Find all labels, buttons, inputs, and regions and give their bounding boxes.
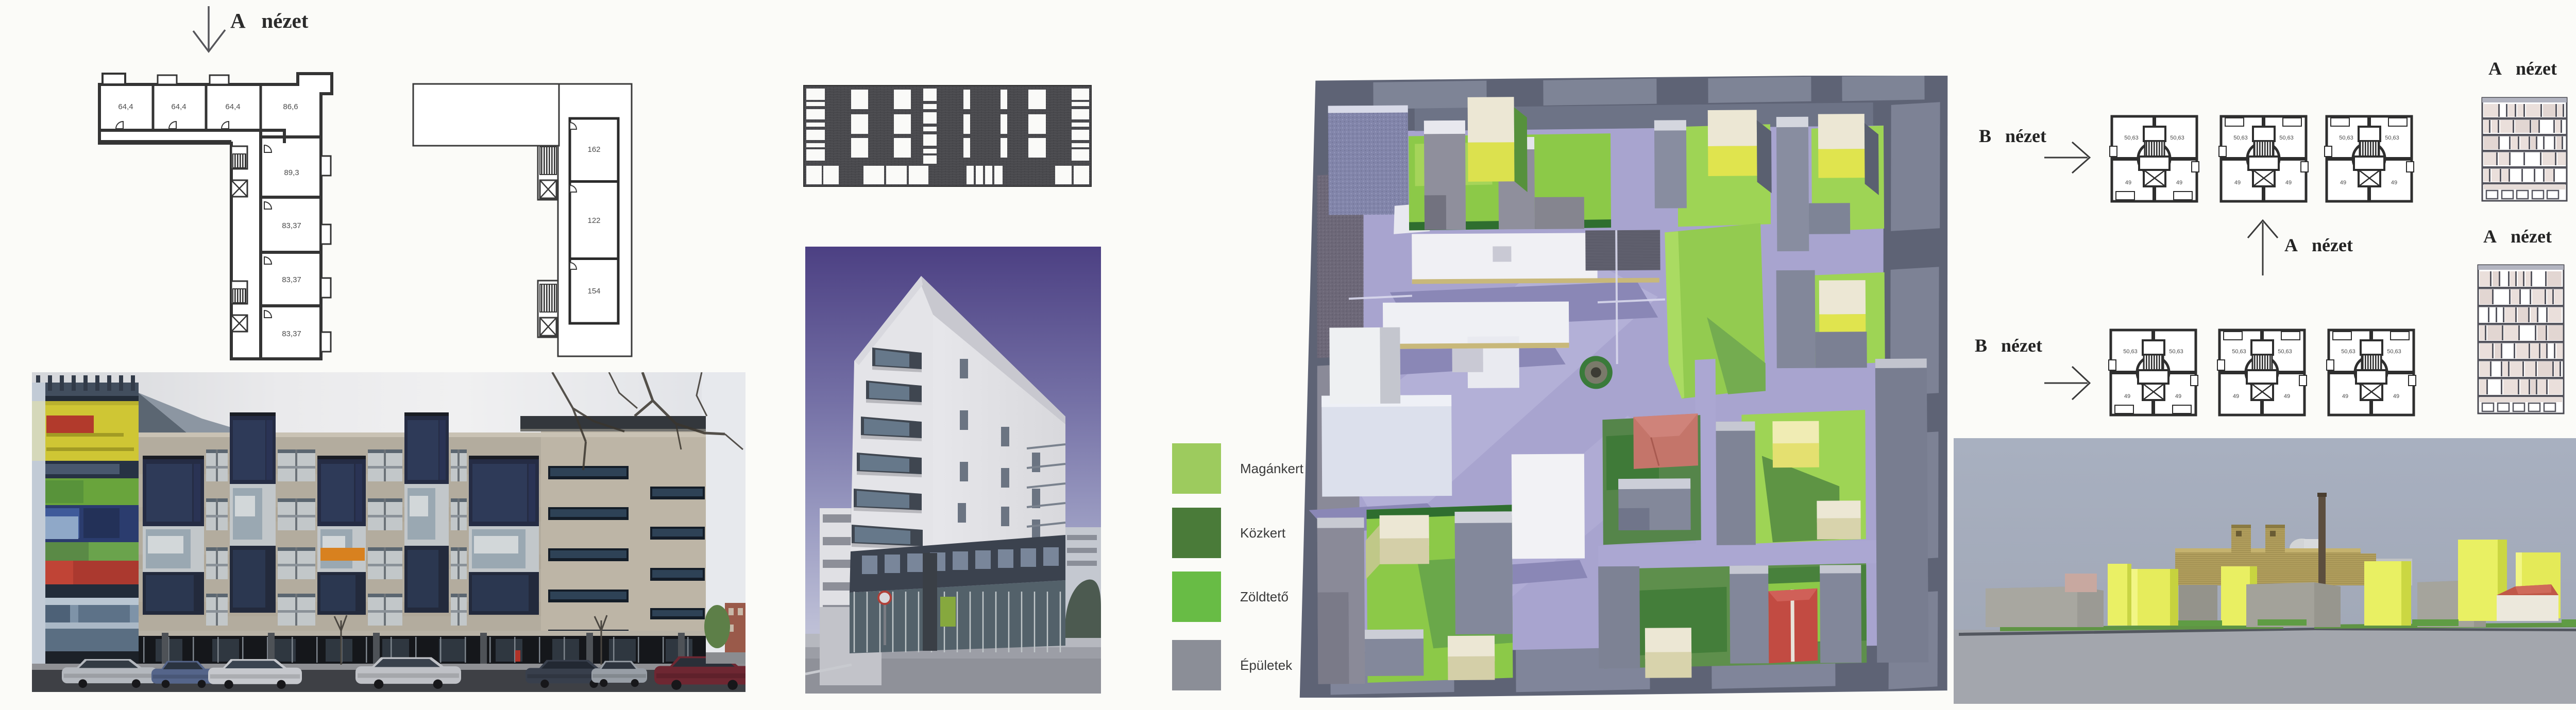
svg-text:49: 49 bbox=[2342, 393, 2348, 400]
svg-text:50,63: 50,63 bbox=[2278, 349, 2292, 355]
svg-text:49: 49 bbox=[2175, 393, 2181, 400]
svg-text:49: 49 bbox=[2125, 180, 2131, 186]
svg-text:83,37: 83,37 bbox=[282, 275, 301, 284]
svg-text:50,63: 50,63 bbox=[2385, 135, 2399, 141]
svg-text:64,4: 64,4 bbox=[118, 102, 133, 111]
svg-text:50,63: 50,63 bbox=[2169, 349, 2183, 355]
svg-text:83,37: 83,37 bbox=[282, 330, 301, 338]
svg-text:50,63: 50,63 bbox=[2279, 135, 2294, 141]
svg-text:64,4: 64,4 bbox=[225, 102, 240, 111]
svg-text:154: 154 bbox=[587, 287, 600, 296]
svg-text:50,63: 50,63 bbox=[2123, 349, 2138, 355]
svg-text:49: 49 bbox=[2234, 180, 2241, 186]
svg-text:50,63: 50,63 bbox=[2170, 135, 2184, 141]
svg-text:49: 49 bbox=[2284, 393, 2290, 400]
svg-text:50,63: 50,63 bbox=[2339, 135, 2353, 141]
svg-text:50,63: 50,63 bbox=[2124, 135, 2139, 141]
svg-text:49: 49 bbox=[2285, 180, 2292, 186]
svg-text:49: 49 bbox=[2340, 180, 2346, 186]
svg-text:49: 49 bbox=[2176, 180, 2182, 186]
svg-text:64,4: 64,4 bbox=[171, 102, 186, 111]
svg-text:49: 49 bbox=[2393, 393, 2399, 400]
svg-text:50,63: 50,63 bbox=[2232, 349, 2246, 355]
svg-text:89,3: 89,3 bbox=[284, 168, 299, 177]
svg-text:50,63: 50,63 bbox=[2387, 349, 2401, 355]
svg-text:49: 49 bbox=[2233, 393, 2239, 400]
svg-text:49: 49 bbox=[2124, 393, 2130, 400]
svg-text:162: 162 bbox=[587, 145, 600, 154]
svg-text:49: 49 bbox=[2391, 180, 2397, 186]
svg-text:50,63: 50,63 bbox=[2233, 135, 2248, 141]
svg-text:50,63: 50,63 bbox=[2341, 349, 2355, 355]
svg-text:83,37: 83,37 bbox=[282, 221, 301, 230]
svg-text:86,6: 86,6 bbox=[283, 102, 298, 111]
svg-text:122: 122 bbox=[587, 216, 600, 225]
